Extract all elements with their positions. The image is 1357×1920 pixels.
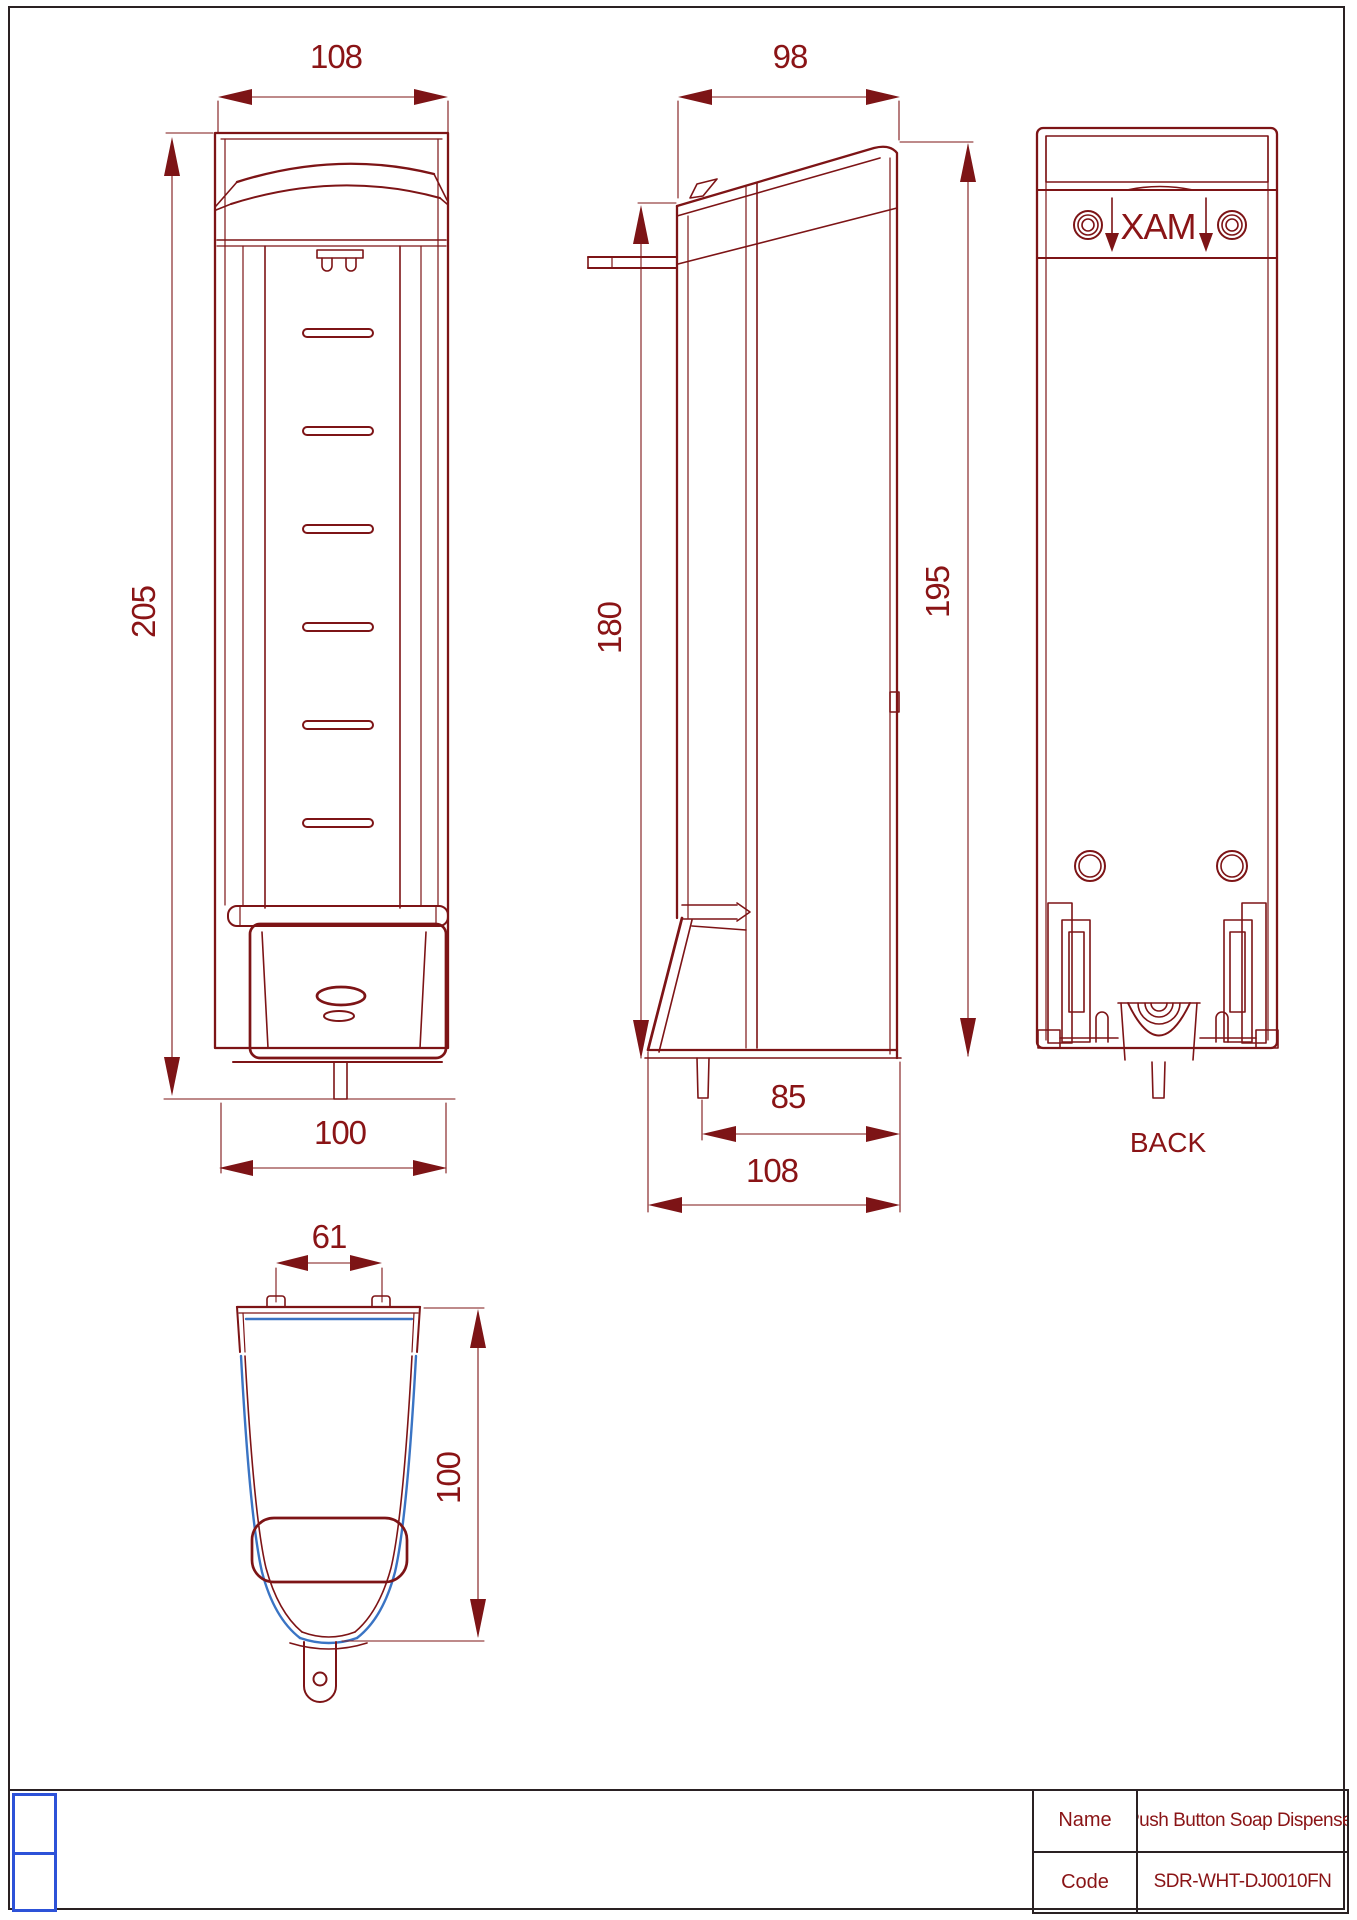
dimension-front-height: 205 (125, 133, 455, 1099)
down-arrow-left (1105, 198, 1119, 252)
dim-label-bottom-depth: 100 (430, 1451, 467, 1504)
title-block-name-label: Name (1034, 1791, 1138, 1853)
dimension-bottom-bracket-width: 61 (276, 1218, 382, 1302)
push-button-face-bottom (252, 1518, 407, 1582)
down-arrow-right (1199, 198, 1213, 252)
title-block: Name Push Button Soap Dispenser Code SDR… (1032, 1789, 1349, 1914)
dim-label-front-height: 205 (125, 586, 162, 638)
dim-label-front-width-bottom: 100 (314, 1114, 367, 1151)
lid-latch (317, 250, 363, 271)
side-body-outline (588, 147, 901, 1098)
dimension-side-nozzle-to-back: 85 (702, 1062, 900, 1212)
nozzle-front (334, 1062, 347, 1099)
dim-label-bottom-bracket-width: 61 (312, 1218, 347, 1255)
drawing-sheet: 108 205 100 (0, 0, 1357, 1920)
dim-label-side-depth-top: 98 (773, 38, 808, 75)
dimension-side-depth-bottom: 108 (648, 1052, 900, 1213)
screw-hole-top-left (1074, 211, 1102, 239)
max-fill-marking-mirrored: MAX (1121, 206, 1197, 247)
pump-housing-front (228, 906, 448, 1099)
dim-label-side-height-back: 195 (919, 566, 956, 618)
front-view: 108 205 100 (125, 38, 455, 1176)
dim-label-side-height-front: 180 (591, 601, 628, 654)
drawing-canvas: 108 205 100 (0, 0, 1357, 1920)
max-band: MAX (1074, 198, 1246, 252)
logo-divider (15, 1852, 54, 1855)
pump-housing-side (645, 903, 901, 1098)
dimension-front-width-bottom: 100 (219, 1103, 447, 1176)
nozzle-bottom (304, 1642, 336, 1702)
front-body-outline (215, 133, 448, 1048)
dimension-side-height-front: 180 (591, 203, 676, 1059)
title-block-name-value: Push Button Soap Dispenser (1138, 1791, 1349, 1853)
side-view: 98 180 195 (588, 38, 976, 1213)
dimension-front-width-top: 108 (218, 38, 448, 133)
title-block-code-label: Code (1034, 1853, 1138, 1915)
company-logo (12, 1793, 57, 1912)
dim-label-side-nozzle-to-back: 85 (771, 1078, 806, 1115)
dim-label-front-width-top: 108 (310, 38, 362, 75)
back-lower-channels (1048, 903, 1266, 1043)
back-body-outline (1037, 128, 1277, 1048)
back-mount-holes (1075, 851, 1247, 881)
back-caption: BACK (1130, 1127, 1207, 1158)
screw-hole-top-right (1218, 211, 1246, 239)
dimension-side-height-back: 195 (900, 142, 976, 1057)
nozzle-side (697, 1058, 709, 1098)
wall-bracket-flange (588, 257, 677, 268)
bottom-view: 61 100 (237, 1218, 486, 1702)
dim-label-side-depth-bottom: 108 (746, 1152, 798, 1189)
back-view: MAX (1037, 128, 1278, 1158)
dimension-bottom-depth: 100 (342, 1308, 486, 1641)
nozzle-back (1152, 1062, 1165, 1098)
level-indicator-slots (303, 329, 373, 827)
title-block-code-value: SDR-WHT-DJ0010FN (1138, 1853, 1349, 1915)
